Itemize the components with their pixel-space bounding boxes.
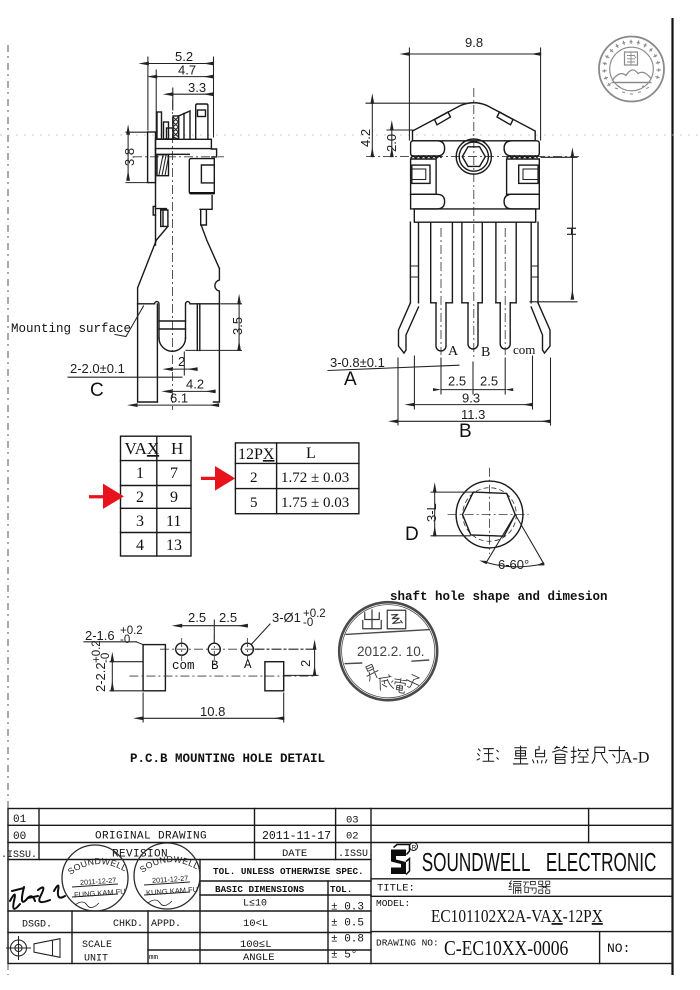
svg-text:2011-11-17: 2011-11-17 [262, 830, 331, 843]
svg-text:2-2.0±0.1: 2-2.0±0.1 [70, 361, 125, 376]
svg-text:00: 00 [13, 831, 26, 843]
svg-text:± 0.8: ± 0.8 [331, 934, 364, 946]
svg-text:2-2.2: 2-2.2 [93, 662, 108, 692]
svg-text:B: B [211, 659, 219, 673]
svg-text:6.1: 6.1 [170, 391, 188, 406]
svg-text:± 0.3: ± 0.3 [331, 902, 364, 914]
svg-text:1.75 ± 0.03: 1.75 ± 0.03 [281, 495, 349, 511]
svg-text:TITLE:: TITLE: [377, 883, 415, 895]
svg-text:3.3: 3.3 [188, 80, 206, 95]
svg-text:2.5: 2.5 [219, 610, 237, 625]
svg-text:EC101102X2A-VAX-12PX: EC101102X2A-VAX-12PX [431, 906, 603, 926]
svg-text:2.5: 2.5 [480, 374, 498, 389]
svg-text:A: A [244, 658, 252, 672]
svg-text:± 5°: ± 5° [331, 950, 357, 962]
svg-text:R: R [412, 845, 417, 852]
svg-text:3: 3 [136, 513, 144, 530]
svg-text:2012.2. 10.: 2012.2. 10. [357, 644, 425, 659]
svg-text:± 0.5: ± 0.5 [331, 918, 364, 930]
svg-text:12PX: 12PX [238, 446, 275, 463]
svg-text:TOL. UNLESS OTHERWISE SPEC.: TOL. UNLESS OTHERWISE SPEC. [213, 866, 364, 877]
svg-text:5: 5 [250, 495, 258, 511]
svg-text:D: D [405, 524, 419, 545]
svg-text:CHKD.: CHKD. [113, 919, 143, 930]
svg-text:3-0.8±0.1: 3-0.8±0.1 [330, 355, 385, 370]
svg-text:9.3: 9.3 [462, 391, 480, 406]
svg-text:DATE: DATE [282, 848, 307, 860]
svg-text:2: 2 [136, 489, 144, 506]
svg-text:MODEL:: MODEL: [376, 898, 410, 909]
svg-text:com: com [172, 659, 195, 673]
svg-text:1: 1 [136, 465, 144, 482]
svg-text:KUNG KAM FU: KUNG KAM FU [146, 885, 199, 898]
svg-text:10.8: 10.8 [200, 704, 225, 719]
svg-text:C-EC10XX-0006: C-EC10XX-0006 [444, 938, 569, 961]
svg-text:C: C [90, 380, 104, 401]
svg-text:7: 7 [170, 465, 178, 482]
svg-text:02: 02 [346, 831, 359, 843]
svg-text:6-60°: 6-60° [498, 557, 529, 572]
svg-text:ANGLE: ANGLE [243, 952, 275, 964]
svg-text:A: A [344, 369, 357, 390]
svg-text:VAX: VAX [125, 439, 160, 458]
svg-text:ELECTRONIC: ELECTRONIC [546, 847, 657, 877]
svg-text:9.8: 9.8 [465, 35, 483, 50]
svg-text:SCALE: SCALE [82, 940, 112, 951]
svg-text:4.2: 4.2 [358, 129, 373, 147]
svg-text:-0: -0 [303, 617, 313, 629]
svg-text:3-L: 3-L [424, 503, 439, 522]
svg-text:2.5: 2.5 [188, 610, 206, 625]
svg-text:11.3: 11.3 [461, 407, 485, 422]
svg-text:4.7: 4.7 [178, 63, 196, 78]
svg-text:.ISSU.: .ISSU. [1, 850, 37, 861]
svg-text:3.5: 3.5 [230, 317, 245, 335]
svg-text:BASIC DIMENSIONS: BASIC DIMENSIONS [215, 884, 305, 895]
svg-text:03: 03 [346, 815, 359, 827]
svg-text:-0: -0 [120, 634, 130, 646]
svg-text:P.C.B MOUNTING HOLE DETAIL: P.C.B MOUNTING HOLE DETAIL [130, 752, 325, 766]
svg-text:APPD.: APPD. [151, 919, 181, 930]
svg-text:10<L: 10<L [243, 918, 268, 930]
svg-text:H: H [564, 227, 579, 236]
svg-text:A: A [448, 344, 459, 359]
svg-text:SOUNDWELL: SOUNDWELL [422, 847, 531, 877]
svg-text:NO:: NO: [607, 941, 630, 956]
svg-text:4: 4 [136, 537, 144, 554]
svg-text:Mounting surface: Mounting surface [11, 322, 131, 336]
svg-text:com: com [513, 342, 535, 357]
svg-text:H: H [171, 439, 183, 458]
svg-text:mm: mm [149, 954, 159, 962]
svg-text:13: 13 [166, 537, 182, 554]
svg-text:2: 2 [250, 470, 258, 486]
svg-text:B: B [481, 345, 490, 360]
svg-text:2.5: 2.5 [448, 374, 466, 389]
svg-text:.ISSU.: .ISSU. [338, 849, 374, 860]
svg-text:DSGD.: DSGD. [22, 920, 52, 931]
svg-text:3-Ø1: 3-Ø1 [272, 610, 301, 625]
svg-text:A-D: A-D [621, 750, 649, 767]
svg-text:1.72 ± 0.03: 1.72 ± 0.03 [281, 470, 349, 486]
svg-text:shaft hole shape and dimesion: shaft hole shape and dimesion [390, 590, 608, 604]
svg-text:9: 9 [170, 489, 178, 506]
svg-text:01: 01 [13, 814, 27, 826]
svg-text:ORIGINAL DRAWING: ORIGINAL DRAWING [95, 831, 207, 843]
svg-text:DRAWING NO:: DRAWING NO: [376, 938, 439, 949]
svg-text:FUNG KAM FU: FUNG KAM FU [74, 887, 126, 900]
svg-text:UNIT: UNIT [84, 954, 108, 965]
svg-text:L≤10: L≤10 [243, 899, 267, 910]
svg-text:B: B [459, 421, 472, 442]
svg-text:11: 11 [166, 513, 181, 530]
svg-text:100≤L: 100≤L [240, 939, 272, 951]
svg-text:2: 2 [298, 660, 313, 667]
svg-text:L: L [306, 445, 316, 462]
svg-text:4.2: 4.2 [186, 377, 204, 392]
svg-text:TOL.: TOL. [330, 884, 352, 895]
